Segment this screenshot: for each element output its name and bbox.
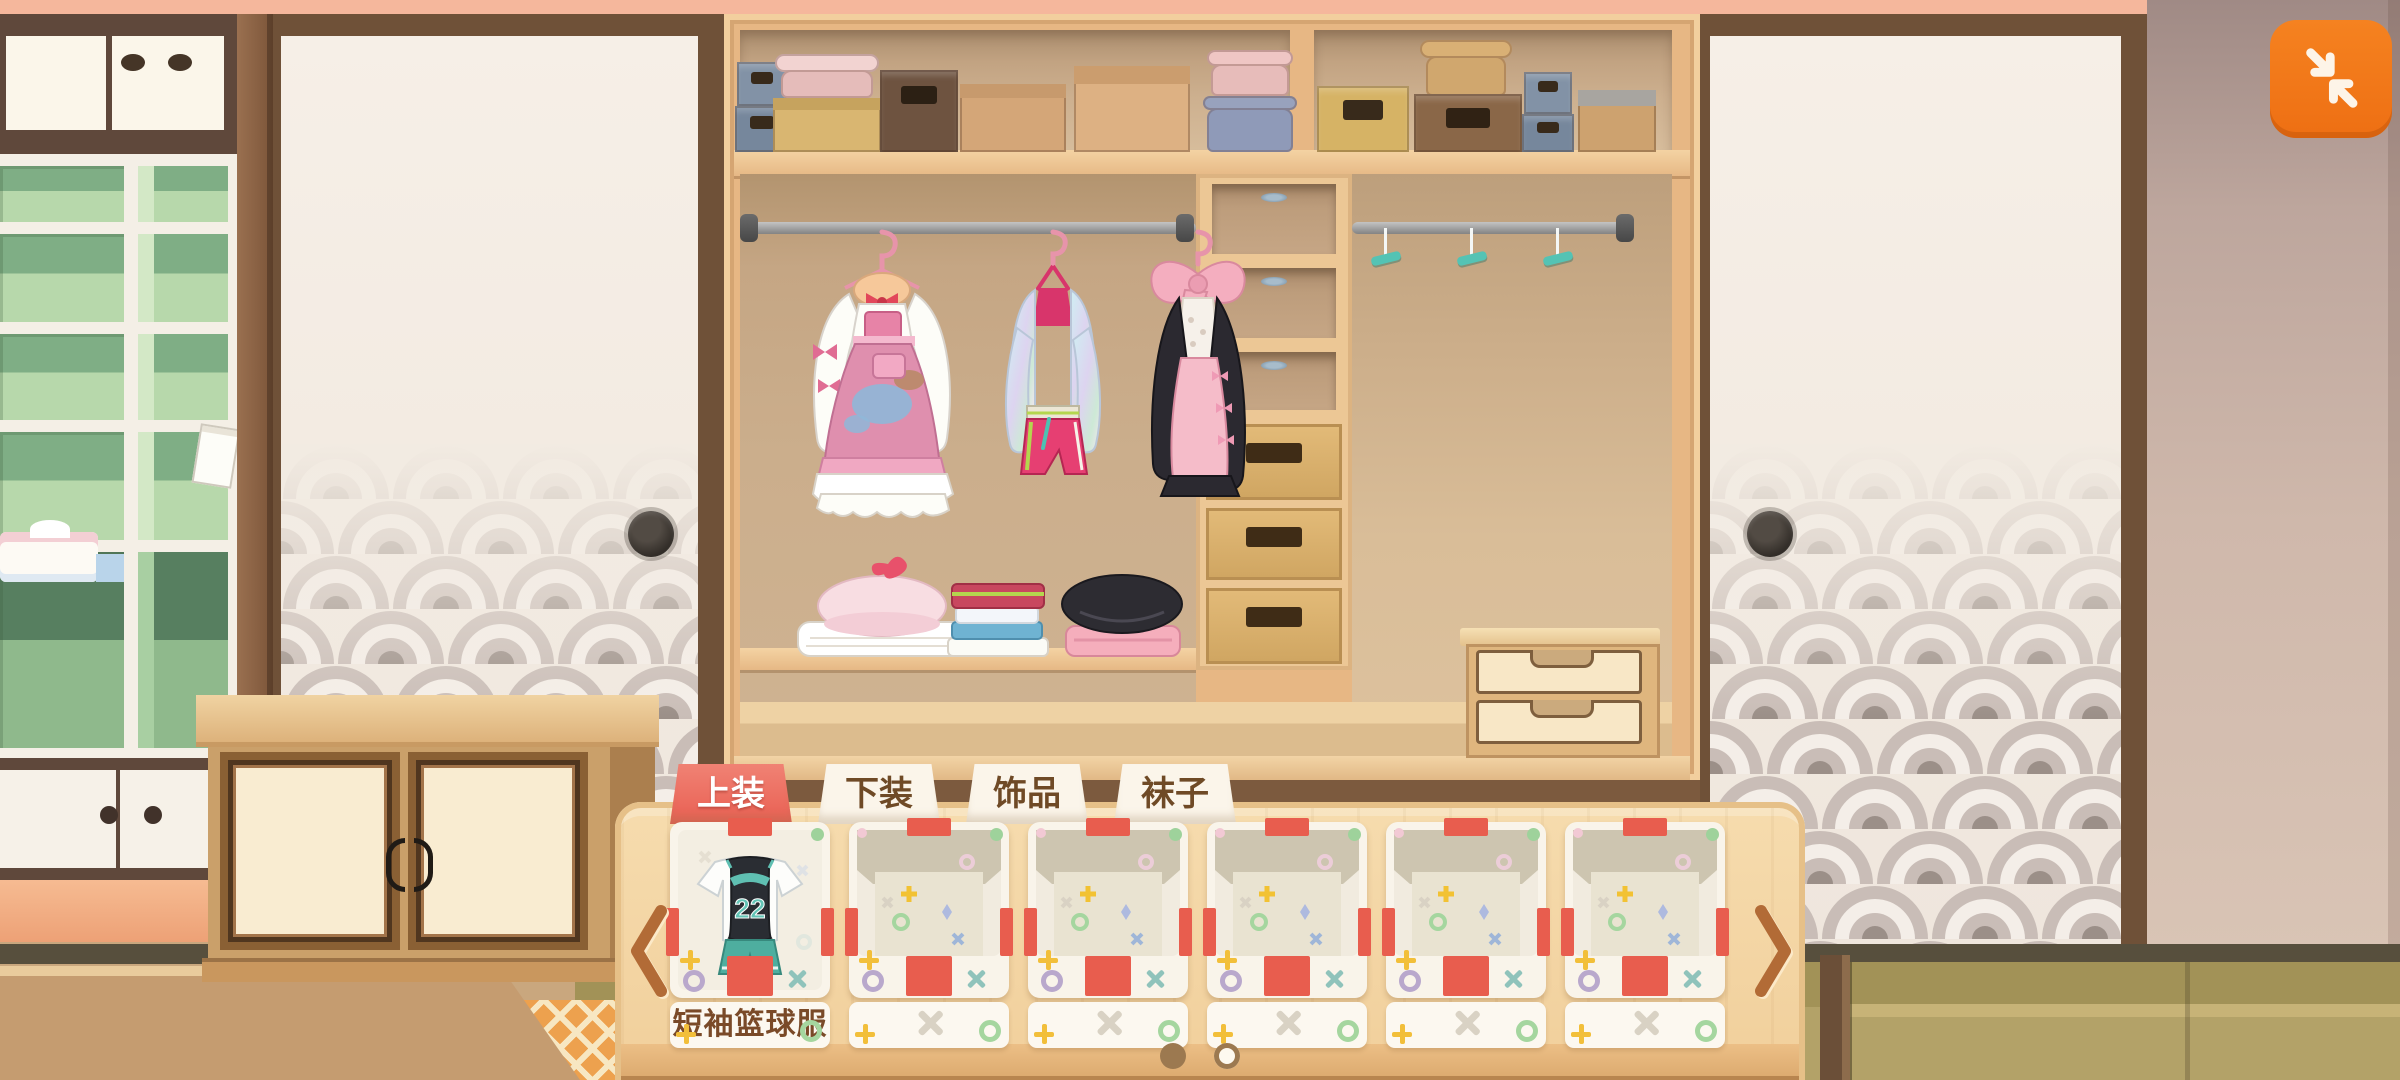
red-tape <box>728 818 772 836</box>
storage-box <box>960 84 1066 152</box>
red-tape <box>1716 908 1729 956</box>
x-mark-icon <box>1452 1008 1483 1039</box>
lower-cabinet <box>0 758 237 880</box>
cabinet-handle-icon <box>144 806 162 824</box>
sparkle-plus-icon <box>680 950 700 970</box>
item-card-empty[interactable] <box>1028 822 1188 998</box>
storage-box <box>773 98 881 152</box>
donut-icon <box>1337 1020 1359 1042</box>
tab-bottoms[interactable]: 下装 <box>818 764 940 824</box>
red-tape <box>845 908 858 956</box>
door-handle <box>628 511 674 557</box>
red-tape <box>1358 908 1371 956</box>
x-mark-icon <box>1681 968 1703 990</box>
item-card-basketball-jersey[interactable]: 22 <box>670 822 830 998</box>
item-name-plate: 短袖篮球服 <box>670 1002 830 1048</box>
red-tape <box>1024 908 1037 956</box>
sparkle-plus-icon <box>1217 950 1237 970</box>
item-name-plate-empty <box>1028 1002 1188 1048</box>
wood-cabinet-plinth <box>202 958 650 982</box>
x-mark-icon <box>1273 1008 1304 1039</box>
x-mark-icon <box>1094 1008 1125 1039</box>
green-dot-icon <box>811 828 824 841</box>
red-tape <box>727 956 773 996</box>
x-mark-icon <box>1502 968 1524 990</box>
sparkle-plus-icon <box>1571 1024 1591 1044</box>
jersey-number: 22 <box>734 893 765 924</box>
storage-box <box>1317 86 1409 152</box>
hanging-outfit-lolita-dress <box>787 228 977 528</box>
red-tape <box>907 818 951 836</box>
donut-icon <box>1399 970 1421 992</box>
red-tape <box>1000 908 1013 956</box>
wardrobe-drawer <box>1206 508 1342 580</box>
item-card-empty[interactable] <box>849 822 1009 998</box>
tab-tops[interactable]: 上装 <box>670 764 792 824</box>
donut-icon <box>800 1020 822 1042</box>
door-handle <box>1747 511 1793 557</box>
sparkle-plus-icon <box>1396 950 1416 970</box>
page-dot[interactable] <box>1214 1043 1240 1069</box>
hanging-outfit-iridescent-set <box>983 228 1123 498</box>
chevron-left-icon <box>626 902 672 1000</box>
sparkle-plus-icon <box>1392 1024 1412 1044</box>
sparkle-plus-icon <box>1575 950 1595 970</box>
red-tape <box>906 956 952 996</box>
red-tape <box>821 908 834 956</box>
red-tape <box>1264 956 1310 996</box>
red-tape <box>1622 956 1668 996</box>
x-mark-icon <box>965 968 987 990</box>
donut-icon <box>862 970 884 992</box>
sparkle-plus-icon <box>1213 1024 1233 1044</box>
storage-box <box>1578 90 1656 152</box>
red-tape <box>1444 818 1488 836</box>
dressing-room-scene: 上装 下装 饰品 袜子 22 <box>0 0 2400 1080</box>
donut-icon <box>1695 1020 1717 1042</box>
red-tape <box>1561 908 1574 956</box>
next-page-button[interactable] <box>1750 902 1796 1000</box>
red-tape <box>1085 956 1131 996</box>
item-name-plate-empty <box>1386 1002 1546 1048</box>
pink-dot-icon <box>857 828 867 838</box>
green-dot-icon <box>1706 828 1719 841</box>
baseboard <box>0 880 237 942</box>
cabinet-handle-icon <box>168 54 192 71</box>
small-blue-box <box>96 554 124 582</box>
green-dot-icon <box>990 828 1003 841</box>
collapse-button[interactable] <box>2270 20 2392 138</box>
tissue-box <box>0 532 98 582</box>
storage-box <box>1524 72 1572 114</box>
x-mark-icon <box>1323 968 1345 990</box>
sparkle-plus-icon <box>1034 1024 1054 1044</box>
pink-dot-icon <box>1036 828 1046 838</box>
storage-box <box>1074 66 1190 152</box>
red-tape <box>1623 818 1667 836</box>
chevron-right-icon <box>1750 902 1796 1000</box>
sparkle-plus-icon <box>855 1024 875 1044</box>
red-tape <box>1265 818 1309 836</box>
storage-box <box>880 70 958 152</box>
storage-box <box>1414 94 1522 152</box>
x-mark-icon <box>786 968 808 990</box>
tab-accessories[interactable]: 饰品 <box>966 764 1088 824</box>
cabinet-handle-icon <box>386 838 405 892</box>
donut-icon <box>979 1020 1001 1042</box>
sparkle-plus-icon <box>859 950 879 970</box>
red-tape <box>1443 956 1489 996</box>
donut-icon <box>1220 970 1242 992</box>
empty-hanger <box>1384 228 1387 262</box>
item-name-plate-empty <box>1565 1002 1725 1048</box>
item-card-empty[interactable] <box>1565 822 1725 998</box>
empty-hanger <box>1556 228 1559 262</box>
pink-dot-icon <box>1215 828 1225 838</box>
red-tape <box>1382 908 1395 956</box>
floor-post <box>1820 955 1850 1080</box>
wood-cabinet-top <box>196 695 659 742</box>
item-name-plate-empty <box>849 1002 1009 1048</box>
red-tape <box>1086 818 1130 836</box>
prev-page-button[interactable] <box>626 902 672 1000</box>
wood-cabinet <box>208 742 610 960</box>
item-card-empty[interactable] <box>1207 822 1367 998</box>
donut-icon <box>1516 1020 1538 1042</box>
cabinet-handle-icon <box>100 806 118 824</box>
wood-floor <box>0 966 580 1080</box>
two-drawer-chest <box>1460 628 1660 758</box>
collapse-arrows-icon <box>2281 30 2381 126</box>
x-mark-icon <box>1631 1008 1662 1039</box>
tab-socks[interactable]: 袜子 <box>1114 764 1236 824</box>
x-mark-icon <box>915 1008 946 1039</box>
page-dot-current[interactable] <box>1160 1043 1186 1069</box>
sparkle-plus-icon <box>676 1024 696 1044</box>
sparkle-plus-icon <box>1038 950 1058 970</box>
item-name-plate-empty <box>1207 1002 1367 1048</box>
wardrobe <box>724 14 1700 780</box>
red-tape <box>1203 908 1216 956</box>
item-card-empty[interactable] <box>1386 822 1546 998</box>
donut-icon <box>683 970 705 992</box>
display-shelf <box>0 154 237 760</box>
storage-box <box>1522 114 1574 152</box>
green-dot-icon <box>1169 828 1182 841</box>
wardrobe-drawer <box>1206 588 1342 664</box>
empty-hanger <box>1470 228 1473 262</box>
pink-dot-icon <box>1573 828 1583 838</box>
donut-icon <box>1578 970 1600 992</box>
clothes-rod-right <box>1352 222 1634 234</box>
x-mark-icon <box>1144 968 1166 990</box>
donut-icon <box>1158 1020 1180 1042</box>
red-tape <box>1179 908 1192 956</box>
green-dot-icon <box>1527 828 1540 841</box>
pink-dot-icon <box>1394 828 1404 838</box>
donut-icon <box>1041 970 1063 992</box>
green-dot-icon <box>1348 828 1361 841</box>
upper-cabinet <box>0 14 237 154</box>
leaning-book <box>192 423 241 489</box>
carousel-bottom-bar <box>621 1044 1799 1076</box>
right-wall <box>2147 0 2400 950</box>
red-tape <box>1537 908 1550 956</box>
cabinet-handle-icon <box>121 54 145 71</box>
hanging-outfit-black-pink-dress <box>1123 228 1273 518</box>
ceiling-trim <box>0 0 2400 14</box>
